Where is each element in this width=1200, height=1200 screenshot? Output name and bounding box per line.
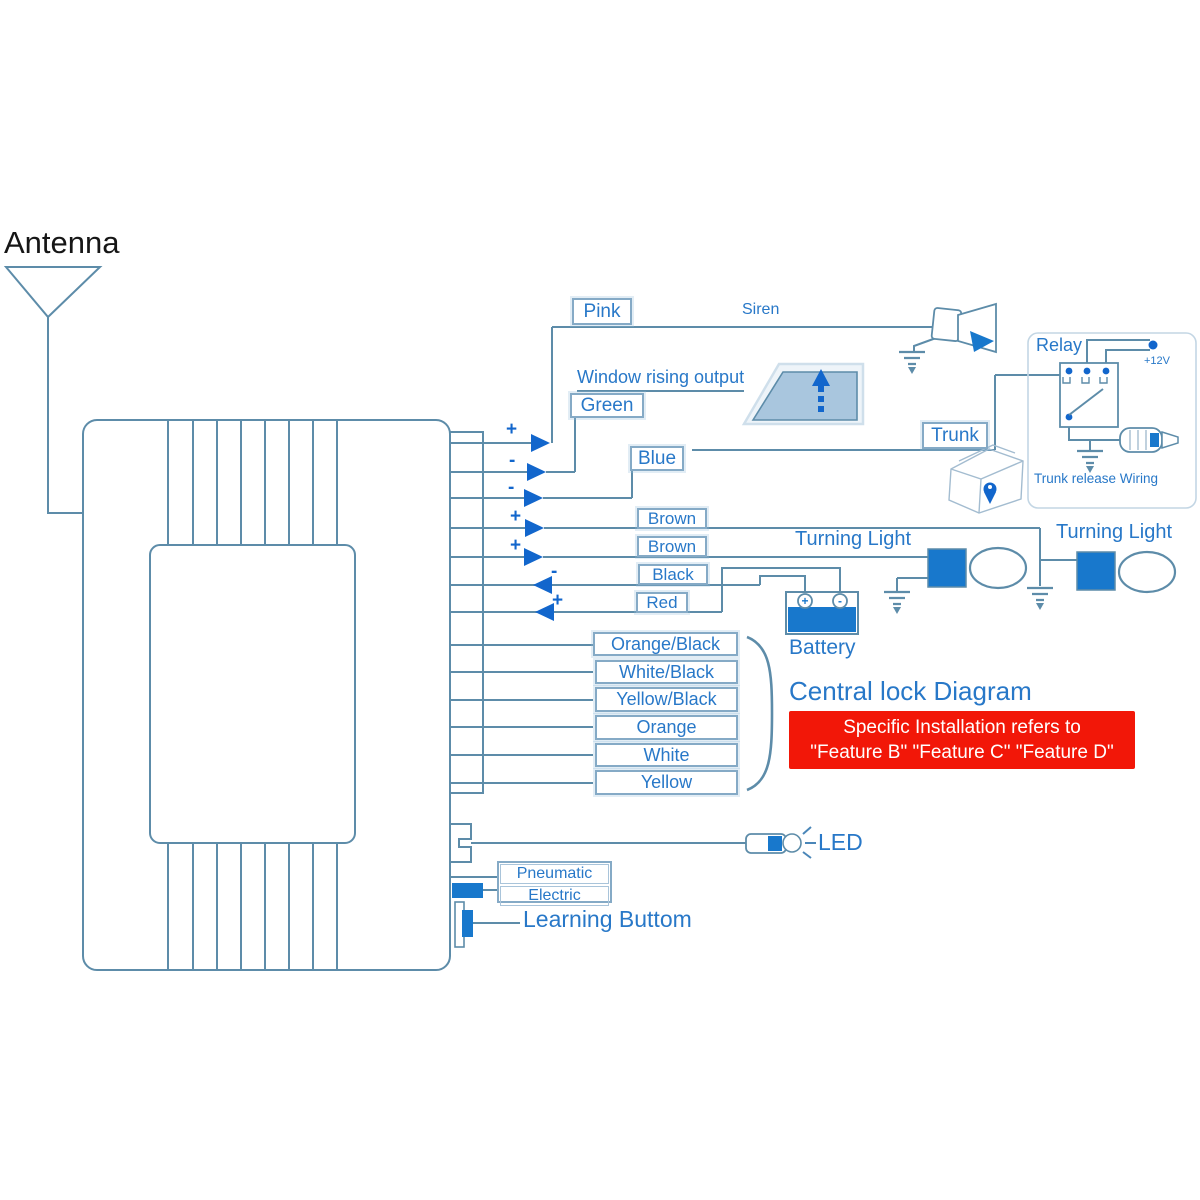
wire-label-blue: Blue	[630, 446, 684, 471]
turning-light-right-label: Turning Light	[1056, 521, 1172, 543]
pneumatic-label: Pneumatic	[500, 864, 609, 884]
pneumatic-actuator-icon	[452, 883, 483, 898]
group-bracket	[747, 637, 772, 790]
led-label: LED	[818, 830, 863, 855]
learning-button-label: Learning Buttom	[523, 907, 692, 932]
wire-label-pink: Pink	[572, 298, 632, 325]
sign-brown-2: +	[510, 535, 521, 557]
trunk-release-label: Trunk release Wiring	[1034, 472, 1158, 487]
battery-minus-terminal: -	[833, 594, 847, 608]
ground-icon	[884, 592, 910, 614]
trunk-actuator-icon	[1120, 428, 1178, 452]
sign-green: -	[509, 450, 515, 472]
antenna-label: Antenna	[4, 226, 120, 260]
wire-black	[450, 576, 805, 593]
battery-plus-terminal: +	[798, 594, 812, 608]
antenna-icon	[6, 267, 100, 513]
supply-label: +12V	[1144, 355, 1170, 367]
arrow-out-icon	[524, 489, 543, 507]
sign-blue: -	[508, 477, 514, 499]
wire-label-orange: Orange	[595, 715, 738, 740]
sign-red: +	[552, 590, 563, 612]
relay-label: Relay	[1036, 336, 1082, 356]
sign-pink: +	[506, 419, 517, 441]
wire-label-yellow: Yellow	[595, 770, 738, 795]
arrow-out-icon	[527, 463, 546, 481]
trunk-pin-icon	[984, 483, 997, 505]
wire-label-black: Black	[638, 564, 708, 585]
siren-label: Siren	[742, 301, 779, 319]
arrow-in-icon	[533, 576, 552, 594]
ground-icon	[899, 352, 925, 374]
sign-brown-1: +	[510, 506, 521, 528]
ground-icon	[1027, 588, 1053, 610]
wire-label-brown-1: Brown	[637, 508, 707, 529]
wire-label-red: Red	[636, 592, 688, 613]
wire-label-green: Green	[570, 393, 644, 418]
pneumatic-electric-box: Pneumatic Electric	[497, 861, 612, 903]
turning-light-right-icon	[1077, 552, 1175, 592]
window-output-label: Window rising output	[577, 368, 744, 392]
wire-label-white: White	[595, 743, 738, 767]
diagram-canvas	[0, 0, 1200, 1200]
wire-label-orange-black: Orange/Black	[593, 632, 738, 656]
wire-label-white-black: White/Black	[595, 660, 738, 684]
arrow-out-icon	[525, 519, 544, 537]
electric-label: Electric	[500, 886, 609, 906]
control-unit-box	[83, 420, 483, 970]
learning-button-icon	[455, 902, 473, 947]
trunk-car-icon	[949, 445, 1023, 513]
arrow-out-icon	[531, 434, 550, 452]
arrow-out-icon	[524, 548, 543, 566]
ground-icon	[1077, 451, 1103, 473]
trunk-label: Trunk	[922, 422, 988, 449]
turning-light-left-label: Turning Light	[795, 528, 911, 550]
turning-light-left-icon	[928, 548, 1026, 588]
supply-terminal-icon	[1149, 341, 1158, 350]
wiring-diagram: Antenna Pink Siren Window rising output …	[0, 0, 1200, 1200]
sign-black: -	[551, 561, 557, 583]
warning-line-1: Specific Installation refers to	[789, 717, 1135, 739]
wire-label-yellow-black: Yellow/Black	[595, 687, 738, 712]
warning-line-2: "Feature B" "Feature C" "Feature D"	[789, 742, 1135, 764]
window-switch-icon	[744, 364, 863, 424]
wire-label-brown-2: Brown	[637, 536, 707, 557]
battery-label: Battery	[789, 636, 856, 659]
installation-warning: Specific Installation refers to "Feature…	[789, 711, 1135, 769]
central-lock-title: Central lock Diagram	[789, 677, 1032, 706]
battery-icon	[786, 592, 858, 634]
